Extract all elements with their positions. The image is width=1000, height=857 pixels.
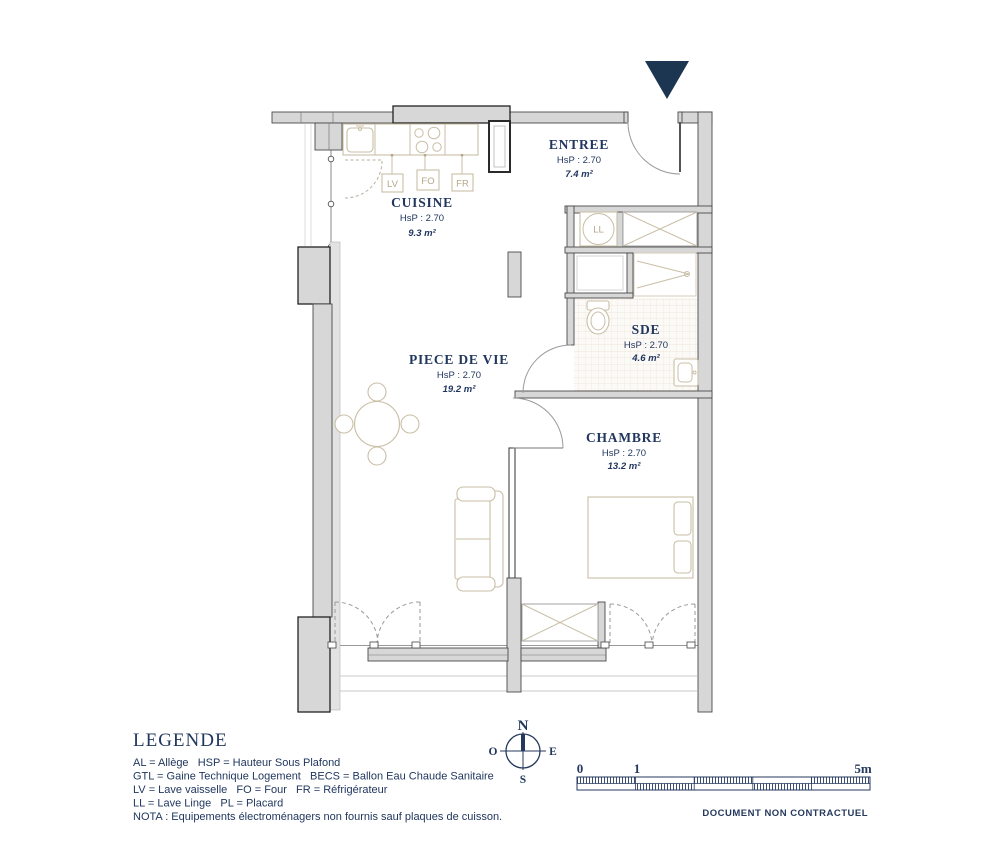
floor-plan-page: LV FO FR LL [0,0,1000,857]
sofa [455,487,503,591]
floor-plan-svg: LV FO FR LL [0,0,1000,857]
closet-side-panel [598,602,605,648]
fridge-label: FR [456,179,469,190]
room-label-entree: ENTREE HsP : 2.70 7.4 m² [549,137,609,180]
walls [272,106,712,712]
entrance-arrow-icon [645,61,689,99]
living-furniture [335,383,503,591]
bedroom-furniture [522,497,693,641]
svg-text:4.6 m²: 4.6 m² [631,353,660,364]
pillow [674,502,691,535]
scale-bar: 0 1 5m [577,761,872,790]
svg-text:HsP : 2.70: HsP : 2.70 [602,448,646,459]
washing-machine-label: LL [593,225,604,236]
oven-label: FO [421,176,434,187]
legend-title: LEGENDE [133,730,228,751]
wall-left-pillar-bottom [298,617,330,712]
svg-text:HsP : 2.70: HsP : 2.70 [557,155,601,166]
svg-text:HsP : 2.70: HsP : 2.70 [437,370,481,381]
room-label-piece-de-vie: PIECE DE VIE HsP : 2.70 19.2 m² [409,352,509,395]
pillow [674,541,691,573]
svg-text:SDE: SDE [632,322,661,337]
compass-north: N [518,718,529,734]
toilet [587,301,609,334]
wall-left-pillar-upper [298,247,330,304]
legend-line: LL = Lave Linge PL = Placard [133,798,283,810]
scale-tick-1: 1 [634,761,641,776]
svg-text:ENTREE: ENTREE [549,137,609,152]
balcony-slabs [368,648,606,661]
entry-door-arc [628,122,680,174]
room-label-cuisine: CUISINE HsP : 2.70 9.3 m² [391,195,453,239]
door-jamb-right [678,112,682,123]
svg-text:13.2 m²: 13.2 m² [608,461,642,472]
svg-text:PIECE DE VIE: PIECE DE VIE [409,352,509,367]
disclaimer-text: DOCUMENT NON CONTRACTUEL [702,808,868,819]
legend: LEGENDE AL = Allège HSP = Hauteur Sous P… [133,730,502,823]
svg-text:CHAMBRE: CHAMBRE [586,430,662,445]
wall-left-top-block [315,123,342,150]
compass-west: O [489,746,498,758]
wall-left-mid [313,304,332,617]
wall-gtl-shower-divider [627,253,633,298]
sde-door-arc [523,345,571,393]
wall-gtl-bottom [565,293,633,298]
wall-sde-left [567,206,574,345]
wall-pdv-chambre [509,448,515,578]
dining-table [335,383,419,465]
gtl-closet [577,256,623,290]
dishwasher-label: LV [387,179,399,190]
chambre-door-arc [513,398,563,448]
kitchen-sink [347,128,373,152]
pillar-bottom-center [507,578,521,692]
compass-east: E [549,746,557,758]
compass-south: S [520,774,526,786]
svg-text:CUISINE: CUISINE [391,195,453,210]
door-jamb-left [624,112,628,123]
svg-text:19.2 m²: 19.2 m² [443,384,477,395]
kitchen-door-arc [345,161,382,198]
legend-line: GTL = Gaine Technique Logement BECS = Ba… [133,771,494,783]
compass-icon: N S O E [489,718,558,786]
legend-line: AL = Allège HSP = Hauteur Sous Plafond [133,757,340,769]
balcony-lines [300,676,697,691]
legend-line: LV = Lave vaisselle FO = Four FR = Réfri… [133,784,388,796]
svg-text:9.3 m²: 9.3 m² [408,228,436,239]
wall-sde-chambre [515,391,712,398]
wall-right [698,112,712,712]
scale-tick-0: 0 [577,761,584,776]
svg-text:HsP : 2.70: HsP : 2.70 [624,340,668,351]
room-label-chambre: CHAMBRE HsP : 2.70 13.2 m² [586,430,662,472]
wall-ll-row-bottom [565,247,712,253]
pillar-mid [508,252,521,297]
kitchen: LV FO FR [343,124,478,192]
washbasin [674,359,698,386]
svg-text:HsP : 2.70: HsP : 2.70 [400,213,444,224]
duct-gtl-kitchen [489,121,510,172]
scale-tick-5m: 5m [854,761,872,776]
legend-line: NOTA : Equipements électroménagers non f… [133,811,502,823]
svg-text:7.4 m²: 7.4 m² [565,169,593,180]
wall-ll-placard-divider [617,212,623,247]
